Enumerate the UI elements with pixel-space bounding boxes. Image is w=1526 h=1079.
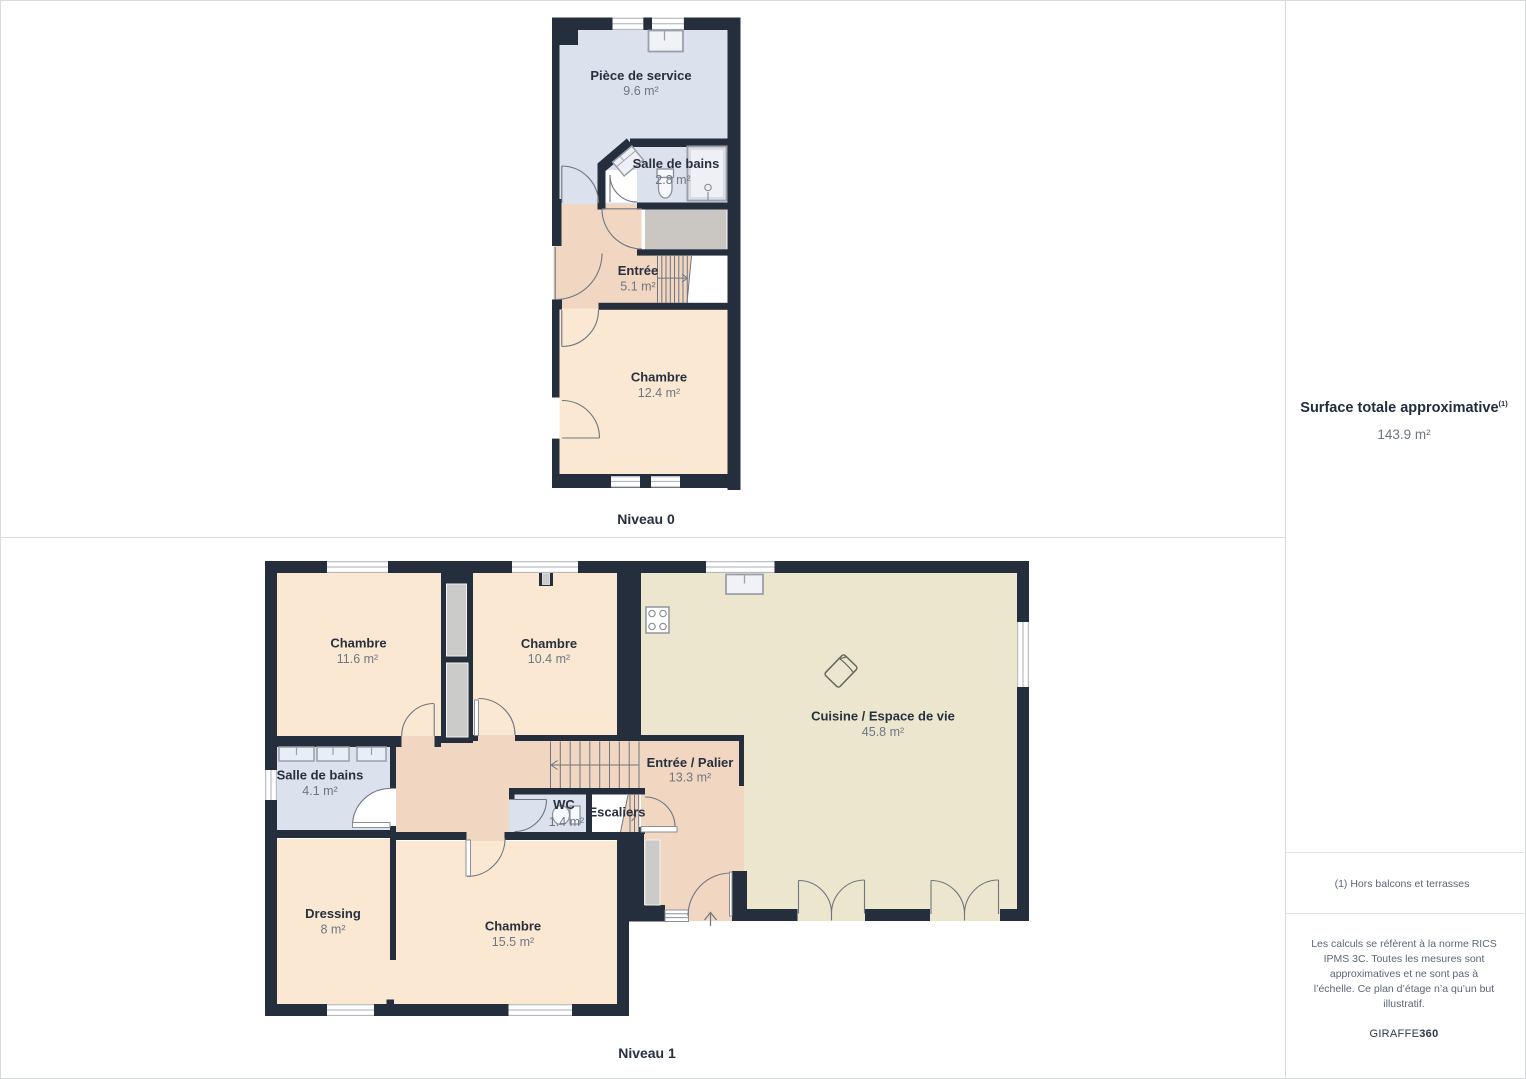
svg-text:(1) Hors balcons et terrasses: (1) Hors balcons et terrasses bbox=[1335, 878, 1470, 890]
svg-text:Cuisine / Espace de vie: Cuisine / Espace de vie bbox=[811, 709, 955, 724]
svg-text:Chambre: Chambre bbox=[521, 636, 577, 651]
svg-text:11.6 m²: 11.6 m² bbox=[337, 652, 378, 666]
svg-text:9.6 m²: 9.6 m² bbox=[623, 84, 658, 98]
svg-text:IPMS 3C. Toutes les mesures so: IPMS 3C. Toutes les mesures sont bbox=[1324, 953, 1485, 965]
svg-text:Salle de bains: Salle de bains bbox=[633, 156, 720, 171]
svg-text:GIRAFFE360: GIRAFFE360 bbox=[1369, 1028, 1438, 1040]
svg-text:4.1 m²: 4.1 m² bbox=[302, 784, 337, 798]
svg-text:Salle de bains: Salle de bains bbox=[277, 768, 364, 783]
svg-text:8 m²: 8 m² bbox=[321, 923, 346, 937]
svg-text:Escaliers: Escaliers bbox=[588, 805, 645, 820]
svg-text:2.8 m²: 2.8 m² bbox=[655, 173, 690, 187]
svg-text:illustratif.: illustratif. bbox=[1383, 998, 1424, 1010]
svg-text:10.4 m²: 10.4 m² bbox=[528, 652, 570, 666]
svg-text:Chambre: Chambre bbox=[330, 636, 386, 651]
svg-text:l’échelle. Ce plan d’étage n’a: l’échelle. Ce plan d’étage n’a qu’un but bbox=[1314, 983, 1494, 995]
svg-text:WC: WC bbox=[553, 797, 575, 812]
svg-text:12.4 m²: 12.4 m² bbox=[638, 386, 680, 400]
svg-text:Les calculs se réfèrent à la n: Les calculs se réfèrent à la norme RICS bbox=[1311, 938, 1497, 950]
svg-text:Chambre: Chambre bbox=[485, 919, 541, 934]
svg-text:1.4 m²: 1.4 m² bbox=[549, 815, 584, 829]
svg-text:Surface totale approximative(1: Surface totale approximative(1) bbox=[1300, 399, 1508, 416]
svg-text:5.1 m²: 5.1 m² bbox=[620, 280, 655, 294]
svg-text:Chambre: Chambre bbox=[631, 370, 687, 385]
svg-text:Niveau 1: Niveau 1 bbox=[618, 1045, 676, 1061]
svg-text:143.9 m²: 143.9 m² bbox=[1377, 427, 1431, 442]
svg-text:Pièce de service: Pièce de service bbox=[590, 68, 691, 83]
svg-text:Dressing: Dressing bbox=[305, 906, 361, 921]
svg-text:Entrée: Entrée bbox=[618, 263, 658, 278]
svg-text:Entrée / Palier: Entrée / Palier bbox=[647, 755, 734, 770]
svg-text:approximatives et ne sont pas: approximatives et ne sont pas à bbox=[1330, 968, 1478, 980]
svg-text:45.8 m²: 45.8 m² bbox=[862, 725, 904, 739]
svg-text:Niveau 0: Niveau 0 bbox=[617, 511, 675, 527]
svg-text:15.5 m²: 15.5 m² bbox=[492, 935, 534, 949]
svg-text:13.3 m²: 13.3 m² bbox=[669, 771, 711, 785]
